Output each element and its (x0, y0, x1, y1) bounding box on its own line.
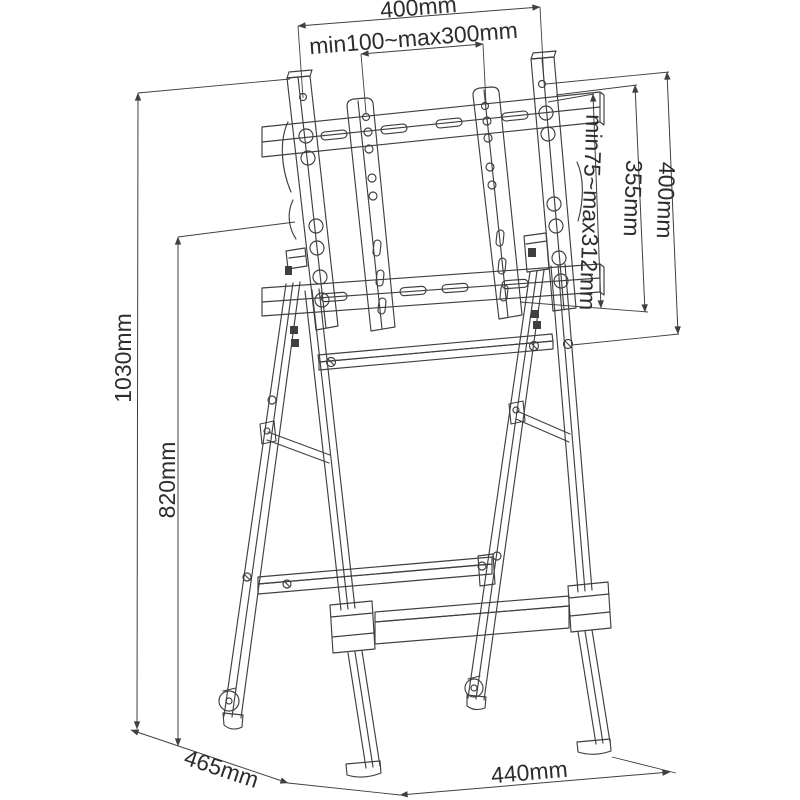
dimension-label-base-width: 440mm (490, 756, 569, 789)
brace-left (260, 421, 330, 463)
screw-head (513, 407, 519, 413)
foot-cap (223, 713, 243, 729)
leg-fold (558, 265, 585, 591)
base-crossbar (375, 596, 569, 644)
screw-slot (565, 341, 571, 347)
extension-line (540, 7, 544, 82)
mounting-hole (309, 219, 323, 233)
dimension-label-vesa-height: min75~max312mm (575, 114, 608, 311)
extension-line (556, 85, 637, 95)
leg-fold (355, 652, 373, 767)
hinge-plate (524, 233, 549, 272)
base-crossbar-part (375, 596, 569, 622)
base-crossbar-part (375, 606, 569, 644)
pivot-hinge-left (285, 248, 307, 347)
front-right-leg-part (578, 632, 596, 744)
screw-slot (244, 574, 250, 580)
stand-illustration (219, 51, 611, 777)
tv-stand-dimension-diagram: 400mm min100~max300mm 400mm 355mm min75~… (0, 0, 800, 800)
leg-fold (312, 290, 348, 609)
left-rail-flange (289, 200, 296, 239)
front-left-leg (305, 289, 381, 777)
extension-line (612, 757, 676, 773)
mounting-hole (364, 128, 372, 136)
drawing-canvas: 400mm min100~max300mm 400mm 355mm min75~… (0, 0, 800, 800)
rear-left-leg-part (224, 284, 286, 716)
rear-right-leg-part (484, 270, 544, 700)
leg-fold (585, 631, 603, 743)
dimension-label-top-width: 400mm (379, 0, 458, 23)
corner-block-line (332, 633, 374, 637)
extension-line (178, 222, 295, 237)
caster-wheel (465, 679, 483, 697)
foot-cap (346, 761, 381, 777)
front-left-leg-part (348, 653, 366, 768)
corner-block-right (568, 582, 611, 632)
right-rail (531, 51, 582, 311)
caster-hub (471, 685, 477, 691)
corner-block-line (331, 613, 373, 617)
mounting-hole (368, 174, 376, 182)
hinge-bolt (528, 248, 536, 257)
corner-block-line (569, 594, 609, 598)
extension-line (572, 334, 679, 345)
front-right-leg-part (592, 630, 610, 742)
dimension-label-total-height: 1030mm (110, 313, 136, 402)
front-left-leg-part (319, 289, 355, 608)
mid-crossbar (318, 334, 553, 370)
left-rail-flange (282, 122, 291, 192)
vesa-strip-right-fold (484, 90, 508, 317)
rear-left-leg-part (241, 282, 300, 718)
hinge-plate-line (526, 241, 547, 244)
dimension-annotations: 400mm min100~max300mm 400mm 355mm min75~… (110, 0, 680, 795)
lower-crossbar (258, 554, 495, 594)
leg-fold (232, 283, 293, 717)
foot-cap (577, 739, 611, 754)
dimension-label-base-depth: 465mm (181, 744, 262, 793)
dimension-label-rail-height: 355mm (619, 159, 648, 237)
left-rail (282, 70, 338, 330)
dimension-label-frame-height: 820mm (154, 442, 180, 519)
caster-hub (226, 698, 232, 704)
dimension-total-height: 1030mm (110, 79, 290, 729)
front-right-leg-part (565, 264, 592, 590)
hinge-bolt (285, 266, 292, 275)
extension-line (361, 54, 366, 113)
dimension-base-width: 440mm (400, 756, 676, 795)
front-right-leg (551, 264, 611, 754)
brace-right (509, 401, 570, 442)
caster-wheel (219, 691, 239, 711)
corner-block-left (330, 601, 375, 653)
dimension-line (137, 93, 138, 729)
rear-left-leg (219, 282, 300, 729)
dimension-bracket-height: 400mm (546, 72, 680, 345)
extension-line (546, 72, 669, 84)
hinge-plate-line (289, 256, 305, 258)
mounting-hole (369, 192, 377, 200)
ground-line (288, 783, 400, 795)
dimension-label-bracket-height: 400mm (652, 161, 681, 239)
mounting-hole (488, 181, 496, 189)
front-left-leg-part (362, 651, 380, 766)
lower-crossbar-part (258, 564, 492, 594)
screw-slot (328, 359, 334, 365)
mounting-slot (378, 298, 387, 315)
lower-crossbar-part (258, 557, 492, 584)
dimension-vesa-width: min100~max300mm (308, 17, 518, 113)
mounting-hole (299, 129, 313, 143)
extension-line (138, 79, 290, 93)
front-left-leg-part (305, 291, 341, 610)
corner-block-line (570, 612, 610, 616)
front-right-leg-part (551, 266, 578, 592)
mounting-hole (484, 134, 492, 142)
mounting-hole (486, 163, 494, 171)
